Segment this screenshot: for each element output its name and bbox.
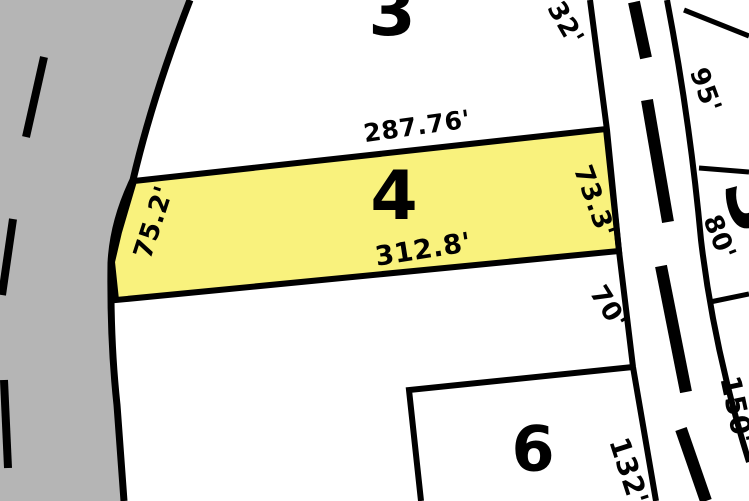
lot-3-number-label: 3 xyxy=(368,0,415,52)
plat-map: 3 32' 287.76' 4 312.8' 75.2' 73.3' 70' 6… xyxy=(0,0,749,501)
lot-6-number-label: 6 xyxy=(511,413,554,486)
east-block-south-frontage-label: 150' xyxy=(713,373,749,447)
lane-dash xyxy=(647,100,668,222)
lane-dash xyxy=(661,266,686,392)
lane-dash xyxy=(634,2,646,58)
lane-dash xyxy=(4,380,8,468)
plat-map-canvas[interactable]: 3 32' 287.76' 4 312.8' 75.2' 73.3' 70' 6… xyxy=(0,0,749,501)
lane-dash xyxy=(681,429,706,501)
lot-4-number-label: 4 xyxy=(370,157,417,236)
